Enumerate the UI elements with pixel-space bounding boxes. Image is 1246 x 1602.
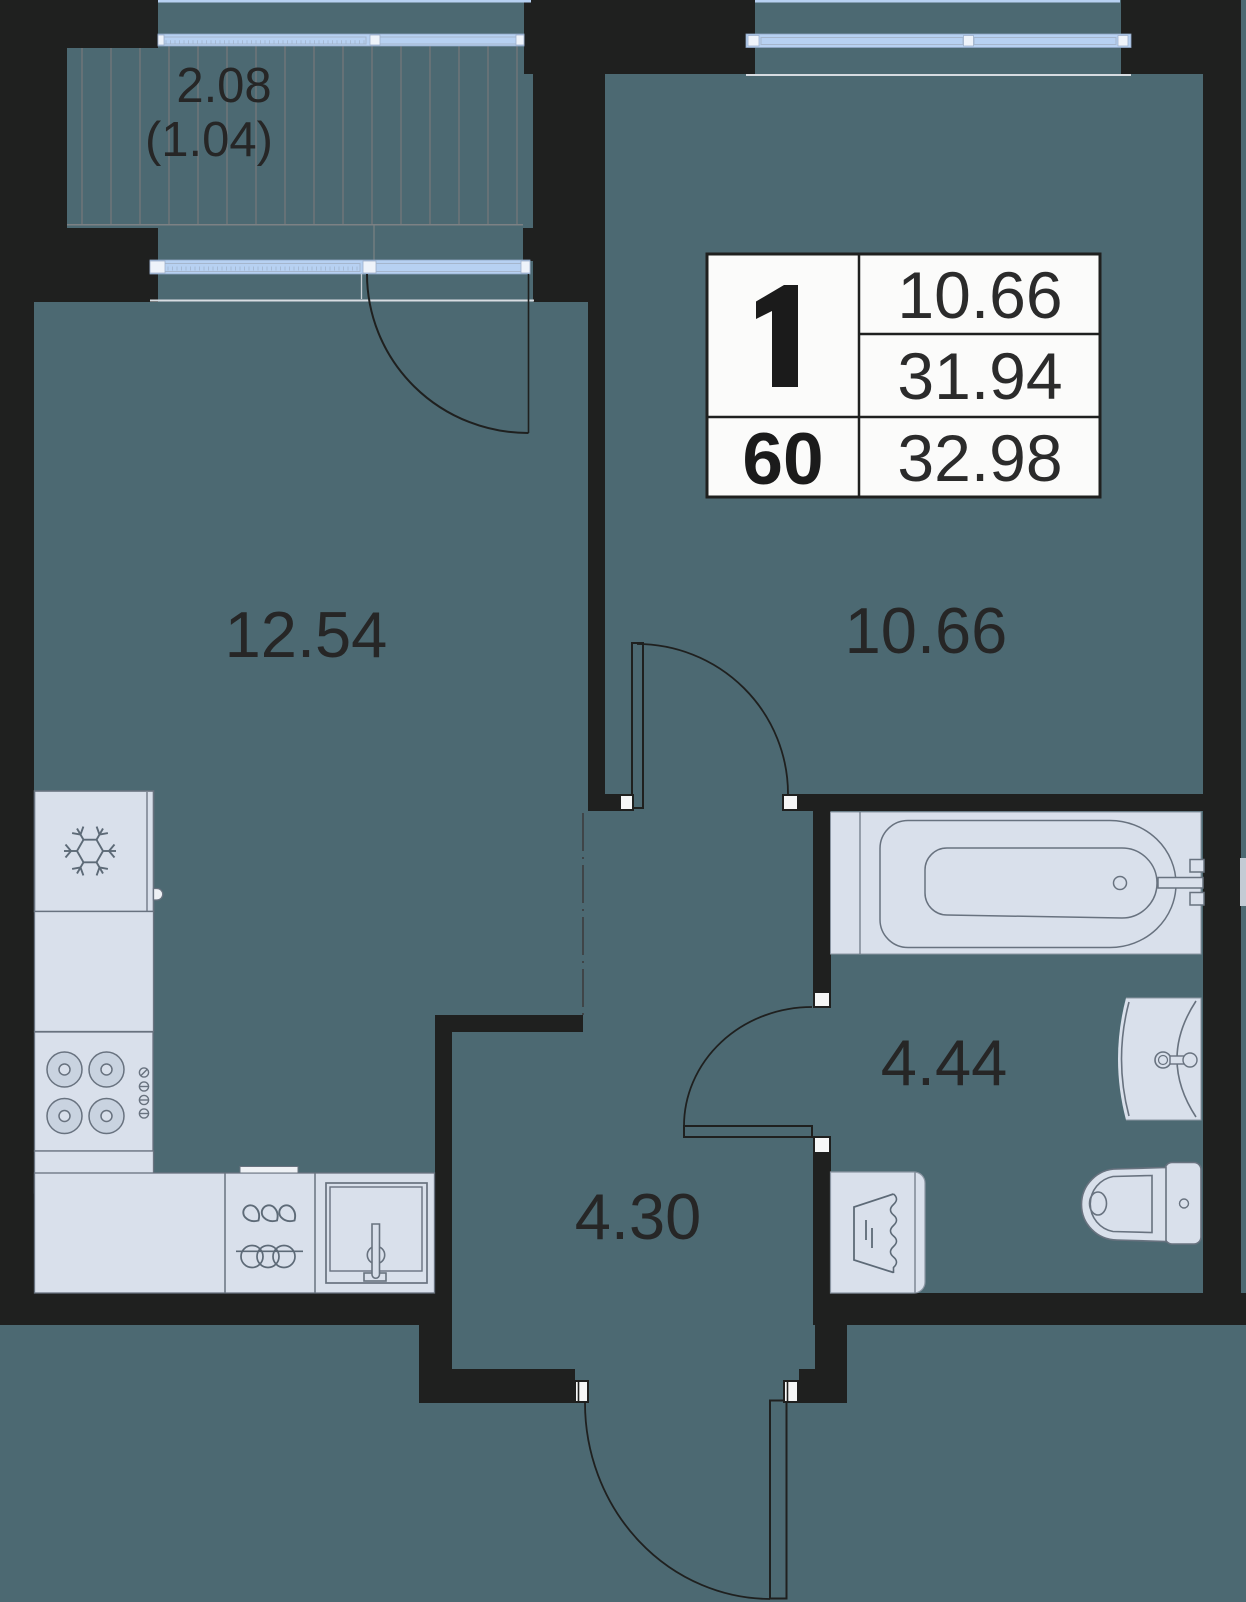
svg-text:4.30: 4.30 <box>575 1180 702 1253</box>
svg-text:12.54: 12.54 <box>225 598 388 671</box>
svg-text:60: 60 <box>742 419 823 500</box>
svg-text:(1.04): (1.04) <box>145 113 273 167</box>
svg-text:32.98: 32.98 <box>897 421 1062 495</box>
svg-text:2.08: 2.08 <box>176 59 271 113</box>
svg-text:10.66: 10.66 <box>845 594 1008 667</box>
svg-text:10.66: 10.66 <box>897 258 1062 332</box>
svg-text:31.94: 31.94 <box>897 339 1062 413</box>
svg-text:4.44: 4.44 <box>881 1026 1008 1099</box>
